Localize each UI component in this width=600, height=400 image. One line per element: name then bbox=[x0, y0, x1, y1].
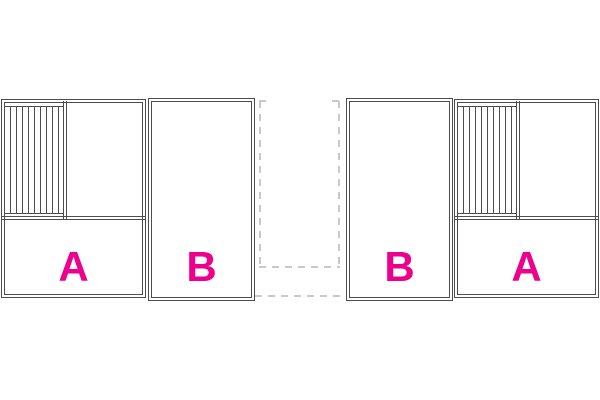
room-b-label: B bbox=[346, 238, 453, 296]
floor-plan-diagram: A B B A bbox=[0, 0, 600, 400]
hatch-area bbox=[457, 106, 516, 214]
wall-beam bbox=[455, 216, 598, 220]
room-a-label: A bbox=[454, 238, 599, 296]
unit-right: B A bbox=[0, 0, 600, 400]
room-divider-wall bbox=[516, 101, 520, 220]
